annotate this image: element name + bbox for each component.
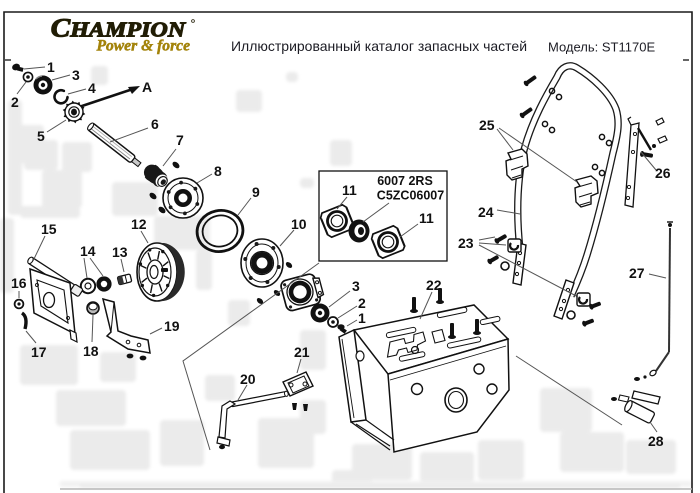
svg-text:20: 20 [240, 371, 256, 387]
svg-text:15: 15 [41, 221, 57, 237]
svg-text:8: 8 [214, 163, 222, 179]
svg-text:10: 10 [291, 216, 307, 232]
svg-text:5: 5 [37, 128, 45, 144]
svg-text:21: 21 [294, 344, 310, 360]
svg-text:1: 1 [47, 59, 55, 75]
svg-text:2: 2 [11, 94, 19, 110]
svg-text:24: 24 [478, 204, 494, 220]
svg-text:25: 25 [479, 117, 495, 133]
svg-text:19: 19 [164, 318, 180, 334]
svg-text:27: 27 [629, 265, 645, 281]
svg-text:A: A [142, 79, 152, 95]
svg-text:Иллюстрированный каталог запас: Иллюстрированный каталог запасных частей [231, 38, 527, 54]
svg-text:11: 11 [342, 182, 357, 198]
svg-text:28: 28 [648, 433, 664, 449]
svg-text:Модель: ST1170E: Модель: ST1170E [548, 40, 655, 55]
svg-text:2: 2 [358, 295, 366, 311]
svg-text:6: 6 [151, 116, 159, 132]
svg-text:1: 1 [358, 310, 366, 326]
svg-text:16: 16 [11, 275, 27, 291]
svg-text:3: 3 [352, 278, 360, 294]
svg-text:6007 2RS: 6007 2RS [377, 174, 433, 188]
svg-text:7: 7 [176, 132, 184, 148]
svg-text:12: 12 [131, 216, 147, 232]
svg-text:26: 26 [655, 165, 671, 181]
svg-text:18: 18 [83, 343, 99, 359]
svg-text:14: 14 [80, 243, 96, 259]
svg-text:13: 13 [112, 244, 128, 260]
svg-text:Power & force: Power & force [96, 38, 190, 55]
svg-text:11: 11 [419, 210, 434, 226]
svg-text:4: 4 [88, 80, 96, 96]
svg-text:C5ZC06007: C5ZC06007 [377, 189, 444, 203]
svg-text:23: 23 [458, 235, 474, 251]
svg-text:9: 9 [252, 184, 260, 200]
svg-text:17: 17 [31, 344, 47, 360]
svg-text:3: 3 [72, 67, 80, 83]
svg-text:22: 22 [426, 277, 442, 293]
